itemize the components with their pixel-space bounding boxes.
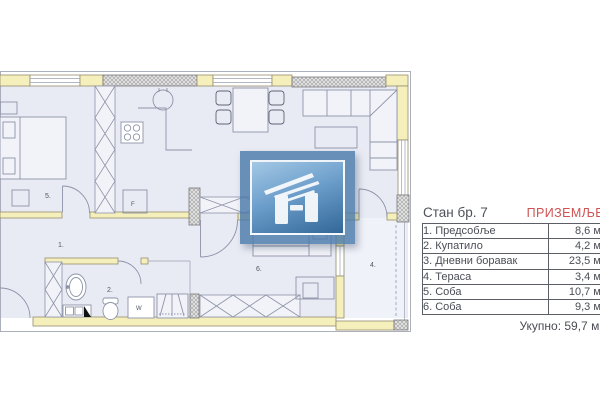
logo-inner-panel: [250, 160, 345, 235]
label-bedroom-2: 6.: [256, 266, 262, 273]
bathroom-cabinet: [63, 305, 91, 317]
shower: [157, 294, 188, 318]
table-row: 6. Соба 9,3 м2: [423, 299, 600, 314]
floor-label: ПРИЗЕМЉЕ: [527, 206, 600, 220]
room-name: 3. Дневни боравак: [423, 254, 549, 269]
room-area: 3,4 м2: [549, 269, 600, 284]
closet-column-kitchen: [95, 86, 115, 213]
room-area: 23,5 м2: [549, 254, 600, 269]
hatched-column-bathroom: [190, 294, 199, 318]
label-fridge: F: [131, 202, 135, 208]
table-row: 4. Тераса 3,4 м2: [423, 269, 600, 284]
hatched-column-right: [397, 195, 409, 222]
bathroom-sink: [66, 274, 86, 300]
area-table: 1. Предсобље 8,6 м2 2. Купатило 4,2 м2 3…: [422, 223, 600, 315]
stove: [121, 122, 143, 143]
label-terrace: 4.: [370, 262, 376, 269]
hatched-wall-top: [103, 75, 197, 86]
wardrobe-bedroom-2-bottom: [200, 295, 300, 317]
room-name: 2. Купатило: [423, 239, 549, 254]
window-top-middle: [213, 75, 272, 86]
room-name: 4. Тераса: [423, 269, 549, 284]
closet-bathroom: [45, 262, 62, 317]
hatched-wall-top-right: [292, 77, 386, 87]
room-area: 9,3 м2: [549, 299, 600, 314]
table-row: 1. Предсобље 8,6 м2: [423, 224, 600, 239]
table-row: 5. Соба 10,7 м2: [423, 284, 600, 299]
hatched-column-center: [189, 188, 200, 225]
room-area: 10,7 м2: [549, 284, 600, 299]
toilet: [103, 298, 118, 320]
room-name: 5. Соба: [423, 284, 549, 299]
house-logo-icon: [252, 162, 343, 229]
hatched-corner-bottom-right: [394, 320, 408, 330]
floorplan-page: 5. 1. 2. 3. 4. 6. F W: [0, 0, 600, 400]
area-table-header: Стан бр. 7 ПРИЗЕМЉЕ: [423, 205, 600, 220]
window-right: [398, 140, 408, 195]
apartment-title: Стан бр. 7: [423, 205, 488, 220]
label-bathroom: 2.: [107, 287, 113, 294]
room-name: 6. Соба: [423, 299, 549, 314]
label-hallway: 1.: [58, 242, 64, 249]
label-bedroom-1: 5.: [45, 193, 51, 200]
window-top-left: [30, 75, 80, 86]
table-row: 3. Дневни боравак 23,5 м2: [423, 254, 600, 269]
area-table-panel: Стан бр. 7 ПРИЗЕМЉЕ 1. Предсобље 8,6 м2 …: [422, 205, 600, 333]
table-row: 2. Купатило 4,2 м2: [423, 239, 600, 254]
total-area: Укупно: 59,7 м2: [422, 319, 600, 333]
room-area: 8,6 м2: [549, 224, 600, 239]
bed-bedroom-1: [0, 117, 66, 179]
room-name: 1. Предсобље: [423, 224, 549, 239]
logo-watermark: [240, 151, 355, 244]
room-area: 4,2 м2: [549, 239, 600, 254]
label-washing-machine: W: [136, 306, 142, 312]
